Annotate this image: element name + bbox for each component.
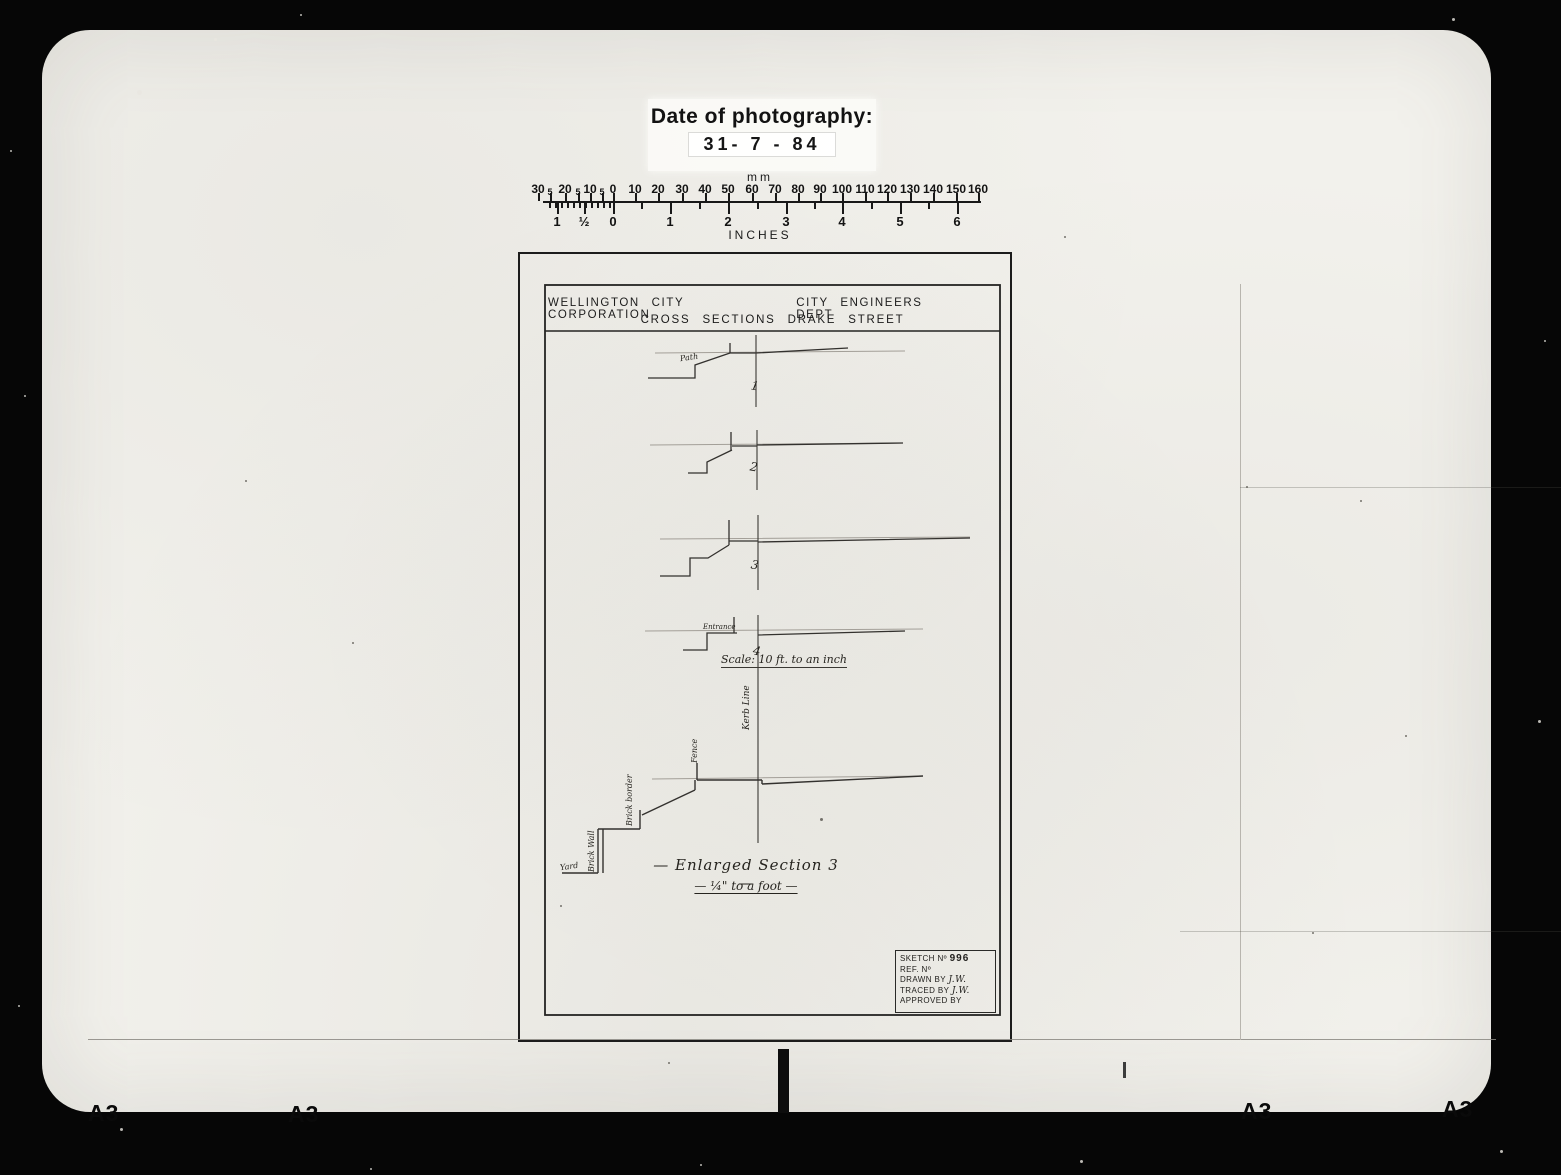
ruler-inch-label: 0 (609, 214, 616, 229)
ruler-minor-tick (555, 203, 557, 208)
ruler-half-tick (871, 203, 873, 209)
approved-by-label: APPROVED BY (900, 996, 962, 1005)
film-speck (700, 1164, 702, 1166)
film-speck (60, 560, 62, 562)
ruler-inch-tick (842, 203, 844, 214)
registration-mark (778, 1049, 789, 1113)
photo-label: Date of photography: 31- 7 - 84 (648, 99, 876, 171)
ruler-mm-label: 30 (675, 182, 688, 196)
drawn-by-row: DRAWN BY J.W. (900, 975, 991, 986)
ref-no-row: REF. Nº (900, 965, 991, 976)
ruler-mm-label: 60 (745, 182, 758, 196)
ruler-mm-label: 80 (791, 182, 804, 196)
inner-frame (545, 285, 1000, 1015)
scale-note: Scale: 10 ft. to an inch (721, 653, 847, 668)
entrance-annotation: Entrance (703, 623, 736, 631)
ruler-minor-tick (561, 203, 563, 208)
frame-label-a3: A3 (1442, 1096, 1473, 1123)
ruler-inch-label: ½ (579, 214, 590, 229)
photo-label-date: 31- 7 - 84 (688, 132, 835, 157)
photo-label-title: Date of photography: (648, 105, 876, 129)
sketch-info-box: SKETCH Nº 996 REF. Nº DRAWN BY J.W. TRAC… (895, 950, 996, 1013)
ruler-half-tick (814, 203, 816, 209)
film-speck (10, 150, 12, 152)
ruler-mm-label: 150 (946, 182, 966, 196)
ruler-inch-label: 3 (782, 214, 789, 229)
ruler-mm-label: 130 (900, 182, 920, 196)
ruler-minor-tick (591, 203, 593, 208)
section-2-profile (688, 432, 903, 473)
film-speck (1500, 1150, 1503, 1153)
scan-artifact-line (1180, 931, 1561, 932)
ruler-mm-label: 20 (558, 182, 571, 196)
ruler-minor-tick (585, 203, 587, 208)
film-speck (137, 90, 142, 95)
section-3-profile (660, 520, 970, 576)
ruler-minor-tick (573, 203, 575, 208)
brick-wall-annotation: Brick Wall (587, 830, 596, 872)
ruler-inch-label: 1 (553, 214, 560, 229)
ruler-mm-label: 70 (768, 182, 781, 196)
section-1-profile (648, 343, 848, 378)
ruler-mm-label: 140 (923, 182, 943, 196)
ruler-mm-label: 5 (599, 187, 604, 197)
ruler-mm-label: 100 (832, 182, 852, 196)
dust-speck (668, 1062, 670, 1064)
kerb-line-annotation: Kerb Line (742, 685, 752, 730)
ruler-half-tick (757, 203, 759, 209)
ruler-mm-label: 10 (583, 182, 596, 196)
ruler-inch-label: 2 (724, 214, 731, 229)
dust-speck (1312, 932, 1314, 934)
frame-label-a3: A3 (88, 1100, 119, 1127)
edge-tick-mark (1123, 1062, 1126, 1078)
ruler-minor-tick (609, 203, 611, 208)
frame-label-a3: A3 (1241, 1098, 1272, 1125)
fence-annotation: Fence (690, 739, 699, 763)
film-speck (1452, 18, 1455, 21)
ruler-inch-tick (900, 203, 902, 214)
ruler-inch-label: 4 (838, 214, 845, 229)
traced-by-row: TRACED BY J.W. (900, 986, 991, 997)
film-speck (300, 14, 302, 16)
ruler-inch-tick (786, 203, 788, 214)
ruler-inch-label: 6 (953, 214, 960, 229)
scan-artifact-line (1240, 487, 1561, 488)
ruler-mm-label: 5 (547, 187, 552, 197)
drawing-title: CROSS SECTIONS DRAKE STREET (545, 314, 1000, 326)
sheet-bottom-edge-line (88, 1039, 1496, 1040)
section-4-profile (683, 617, 905, 650)
dust-speck (560, 905, 562, 907)
ruler-inch-tick (557, 203, 559, 214)
ruler-mm-label: 120 (877, 182, 897, 196)
ruler-mm-label: 0 (610, 182, 617, 196)
ruler-mm-label: 5 (575, 187, 580, 197)
ruler-minor-tick (567, 203, 569, 208)
enlarged-section-scale: — ¼" to a foot — (646, 879, 846, 893)
dust-speck (1360, 500, 1362, 502)
frame-label-a3: A3 (288, 1101, 319, 1128)
film-speck (214, 38, 217, 41)
ruler-half-tick (699, 203, 701, 209)
dust-speck (352, 642, 354, 644)
film-speck (1080, 1160, 1083, 1163)
ruler-minor-tick (597, 203, 599, 208)
page-edge-line (1240, 284, 1241, 1040)
film-speck (18, 1005, 20, 1007)
ruler-inch-tick (613, 203, 615, 214)
ruler-inch-label: 5 (896, 214, 903, 229)
sketch-no-label: SKETCH Nº (900, 954, 947, 963)
ruler-mm-label: 110 (855, 182, 874, 196)
dust-speck (1246, 486, 1248, 488)
film-speck (370, 1168, 372, 1170)
film-speck (1538, 720, 1541, 723)
ruler-mm-label: 40 (698, 182, 711, 196)
ruler-inches-unit: INCHES (710, 228, 810, 242)
ruler-mm-label: 50 (721, 182, 734, 196)
ruler-mm-label: 30 (531, 182, 544, 196)
ruler-inch-tick (728, 203, 730, 214)
drawing-sheet: WELLINGTON CITY CORPORATION CITY ENGINEE… (518, 252, 1012, 1042)
brick-border-annotation: Brick border (625, 774, 634, 826)
ruler-mm-label: 90 (813, 182, 826, 196)
outer-frame (519, 253, 1011, 1041)
ruler-mm-label: 20 (651, 182, 664, 196)
ruler-mm-label: 10 (628, 182, 641, 196)
ruler-inch-label: 1 (666, 214, 673, 229)
dust-speck (245, 480, 247, 482)
dust-speck (820, 818, 823, 821)
dust-speck (1064, 236, 1066, 238)
ruler-inch-tick (957, 203, 959, 214)
ruler-half-tick (928, 203, 930, 209)
drawn-by-value: J.W. (949, 975, 967, 985)
approved-by-row: APPROVED BY (900, 996, 991, 1007)
ruler-minor-tick (579, 203, 581, 208)
kerb-line (756, 335, 758, 843)
film-speck (24, 395, 26, 397)
ruler-minor-tick (549, 203, 551, 208)
ref-no-label: REF. Nº (900, 965, 931, 974)
sketch-no-row: SKETCH Nº 996 (900, 954, 991, 965)
sketch-no-value: 996 (950, 953, 970, 964)
dust-speck (1405, 735, 1407, 737)
ruler-minor-tick (603, 203, 605, 208)
cross-sections-drawing (518, 252, 1012, 1042)
ruler-inch-tick (670, 203, 672, 214)
ruler-half-tick (641, 203, 643, 209)
traced-by-value: J.W. (952, 986, 970, 996)
film-speck (1544, 340, 1546, 342)
traced-by-label: TRACED BY (900, 986, 949, 995)
film-scan: Date of photography: 31- 7 - 84 mm 30520… (0, 0, 1561, 1175)
film-speck (120, 1128, 123, 1131)
ground-reference-lines (645, 351, 970, 779)
ruler-mm-label: 160 (968, 182, 988, 196)
drawn-by-label: DRAWN BY (900, 975, 946, 984)
